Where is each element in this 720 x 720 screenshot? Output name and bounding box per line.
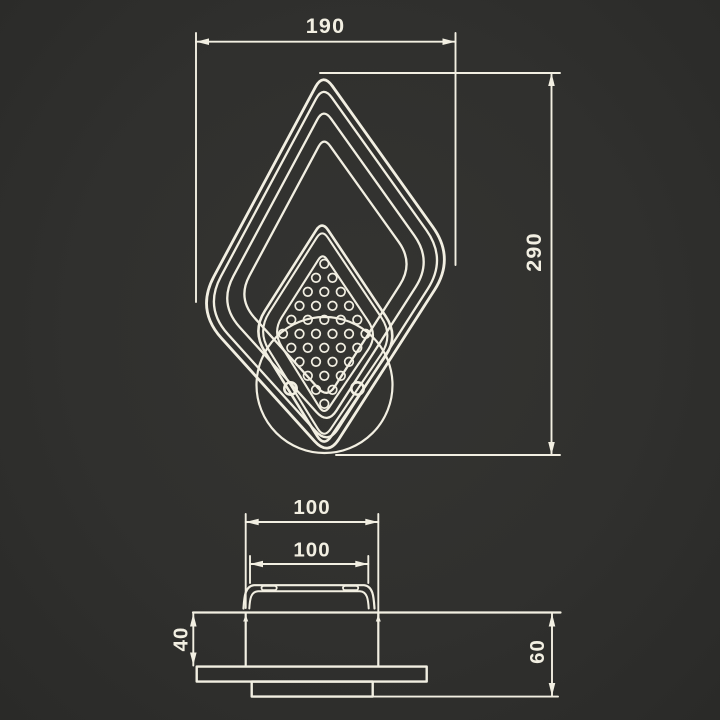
perforation-dot (320, 344, 329, 353)
front-step-profile (252, 682, 373, 697)
perforation-dot (328, 330, 337, 339)
perforation-dot (304, 344, 313, 353)
arrowhead-right (443, 38, 456, 45)
perforation-dot (287, 344, 296, 353)
front-height-label: 290 (522, 232, 546, 271)
arrowhead-right (355, 561, 368, 568)
arrowhead-down (549, 683, 556, 696)
perforation-dot (312, 330, 321, 339)
perforation-dot (320, 400, 329, 409)
arrowhead-down (190, 653, 197, 666)
bracket-inner-contour (249, 591, 368, 608)
bracket-width-label: 100 (293, 539, 330, 562)
backplate-profile (197, 667, 427, 682)
perforation-dot (295, 330, 304, 339)
bracket-outer-contour (244, 585, 375, 608)
arrowhead-left (250, 561, 263, 568)
dimension-inset-depth-40: 40 (170, 614, 197, 666)
perforation-dot (312, 358, 321, 367)
mounting-bracket (244, 585, 375, 608)
perforation-dot (320, 260, 329, 269)
bracket-slot-left (262, 586, 277, 590)
technical-drawing-canvas: 190 290 100 (0, 0, 720, 720)
perforation-dot (328, 274, 337, 283)
perforation-dot (287, 316, 296, 325)
arrowhead-left (196, 38, 209, 45)
arrowhead-left (246, 519, 259, 526)
perforation-dot (353, 316, 362, 325)
perforation-dot (295, 358, 304, 367)
perforation-dot (304, 288, 313, 297)
side-view: 100 100 (170, 496, 561, 697)
lamp-body-profile (197, 614, 427, 697)
perforation-dot (320, 288, 329, 297)
outer-diamond-frames (207, 80, 445, 448)
perforation-dot (295, 302, 304, 311)
arrowhead-right (365, 519, 378, 526)
bracket-slot-right (343, 586, 358, 590)
perforation-dot (337, 344, 346, 353)
dimension-total-depth-60: 60 (526, 614, 555, 697)
perforation-dot (312, 302, 321, 311)
perforation-dot (345, 302, 354, 311)
front-width-label: 190 (306, 14, 345, 38)
front-view: 190 290 (196, 14, 560, 455)
perforation-dot (328, 302, 337, 311)
body-width-label: 100 (293, 496, 330, 519)
arrowhead-up (549, 614, 556, 627)
perforation-dot (328, 358, 337, 367)
perforation-dot (320, 372, 329, 381)
perforation-dot (345, 330, 354, 339)
inset-depth-label: 40 (170, 627, 193, 652)
outer-diamond-outline-2 (214, 92, 437, 437)
perforation-dot (337, 288, 346, 297)
total-depth-label: 60 (526, 639, 549, 664)
wall-lamp-dimension-drawing: 190 290 100 (0, 0, 720, 720)
perforation-dot (312, 274, 321, 283)
dimension-bracket-width-100: 100 (250, 539, 368, 584)
arrowhead-up (190, 614, 197, 627)
arrowhead-up (548, 73, 555, 86)
arrowhead-down (548, 442, 555, 455)
